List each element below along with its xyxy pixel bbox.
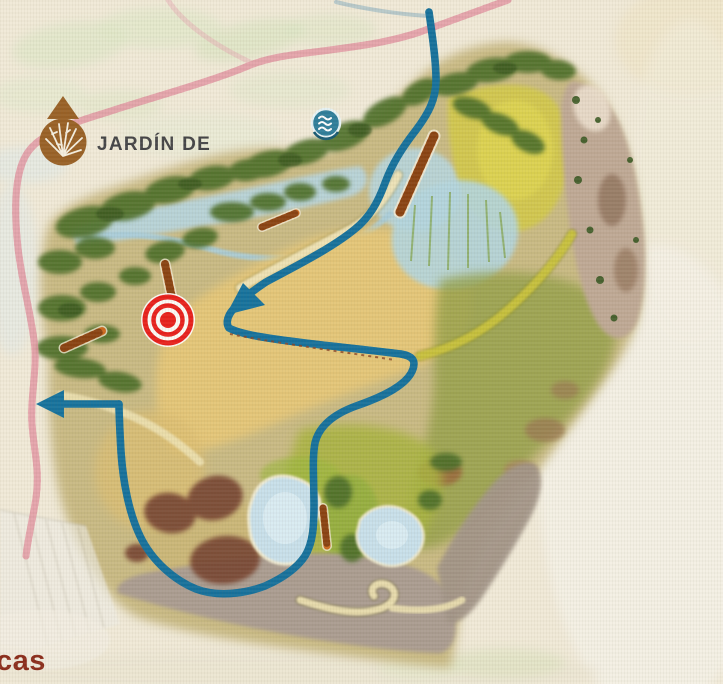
water-feature-marker[interactable] <box>312 109 340 139</box>
bridge-small-4 <box>323 508 327 546</box>
current-location-target[interactable] <box>141 293 195 347</box>
agave-plant-icon <box>40 119 87 166</box>
garden-area-label: JARDÍN DE <box>97 133 211 155</box>
park-map: JARDÍN DE cas <box>0 0 723 684</box>
bottom-partial-label: cas <box>0 645 46 677</box>
bridge-small-1 <box>165 264 172 298</box>
park-map-illustration: JARDÍN DE cas <box>0 0 723 684</box>
